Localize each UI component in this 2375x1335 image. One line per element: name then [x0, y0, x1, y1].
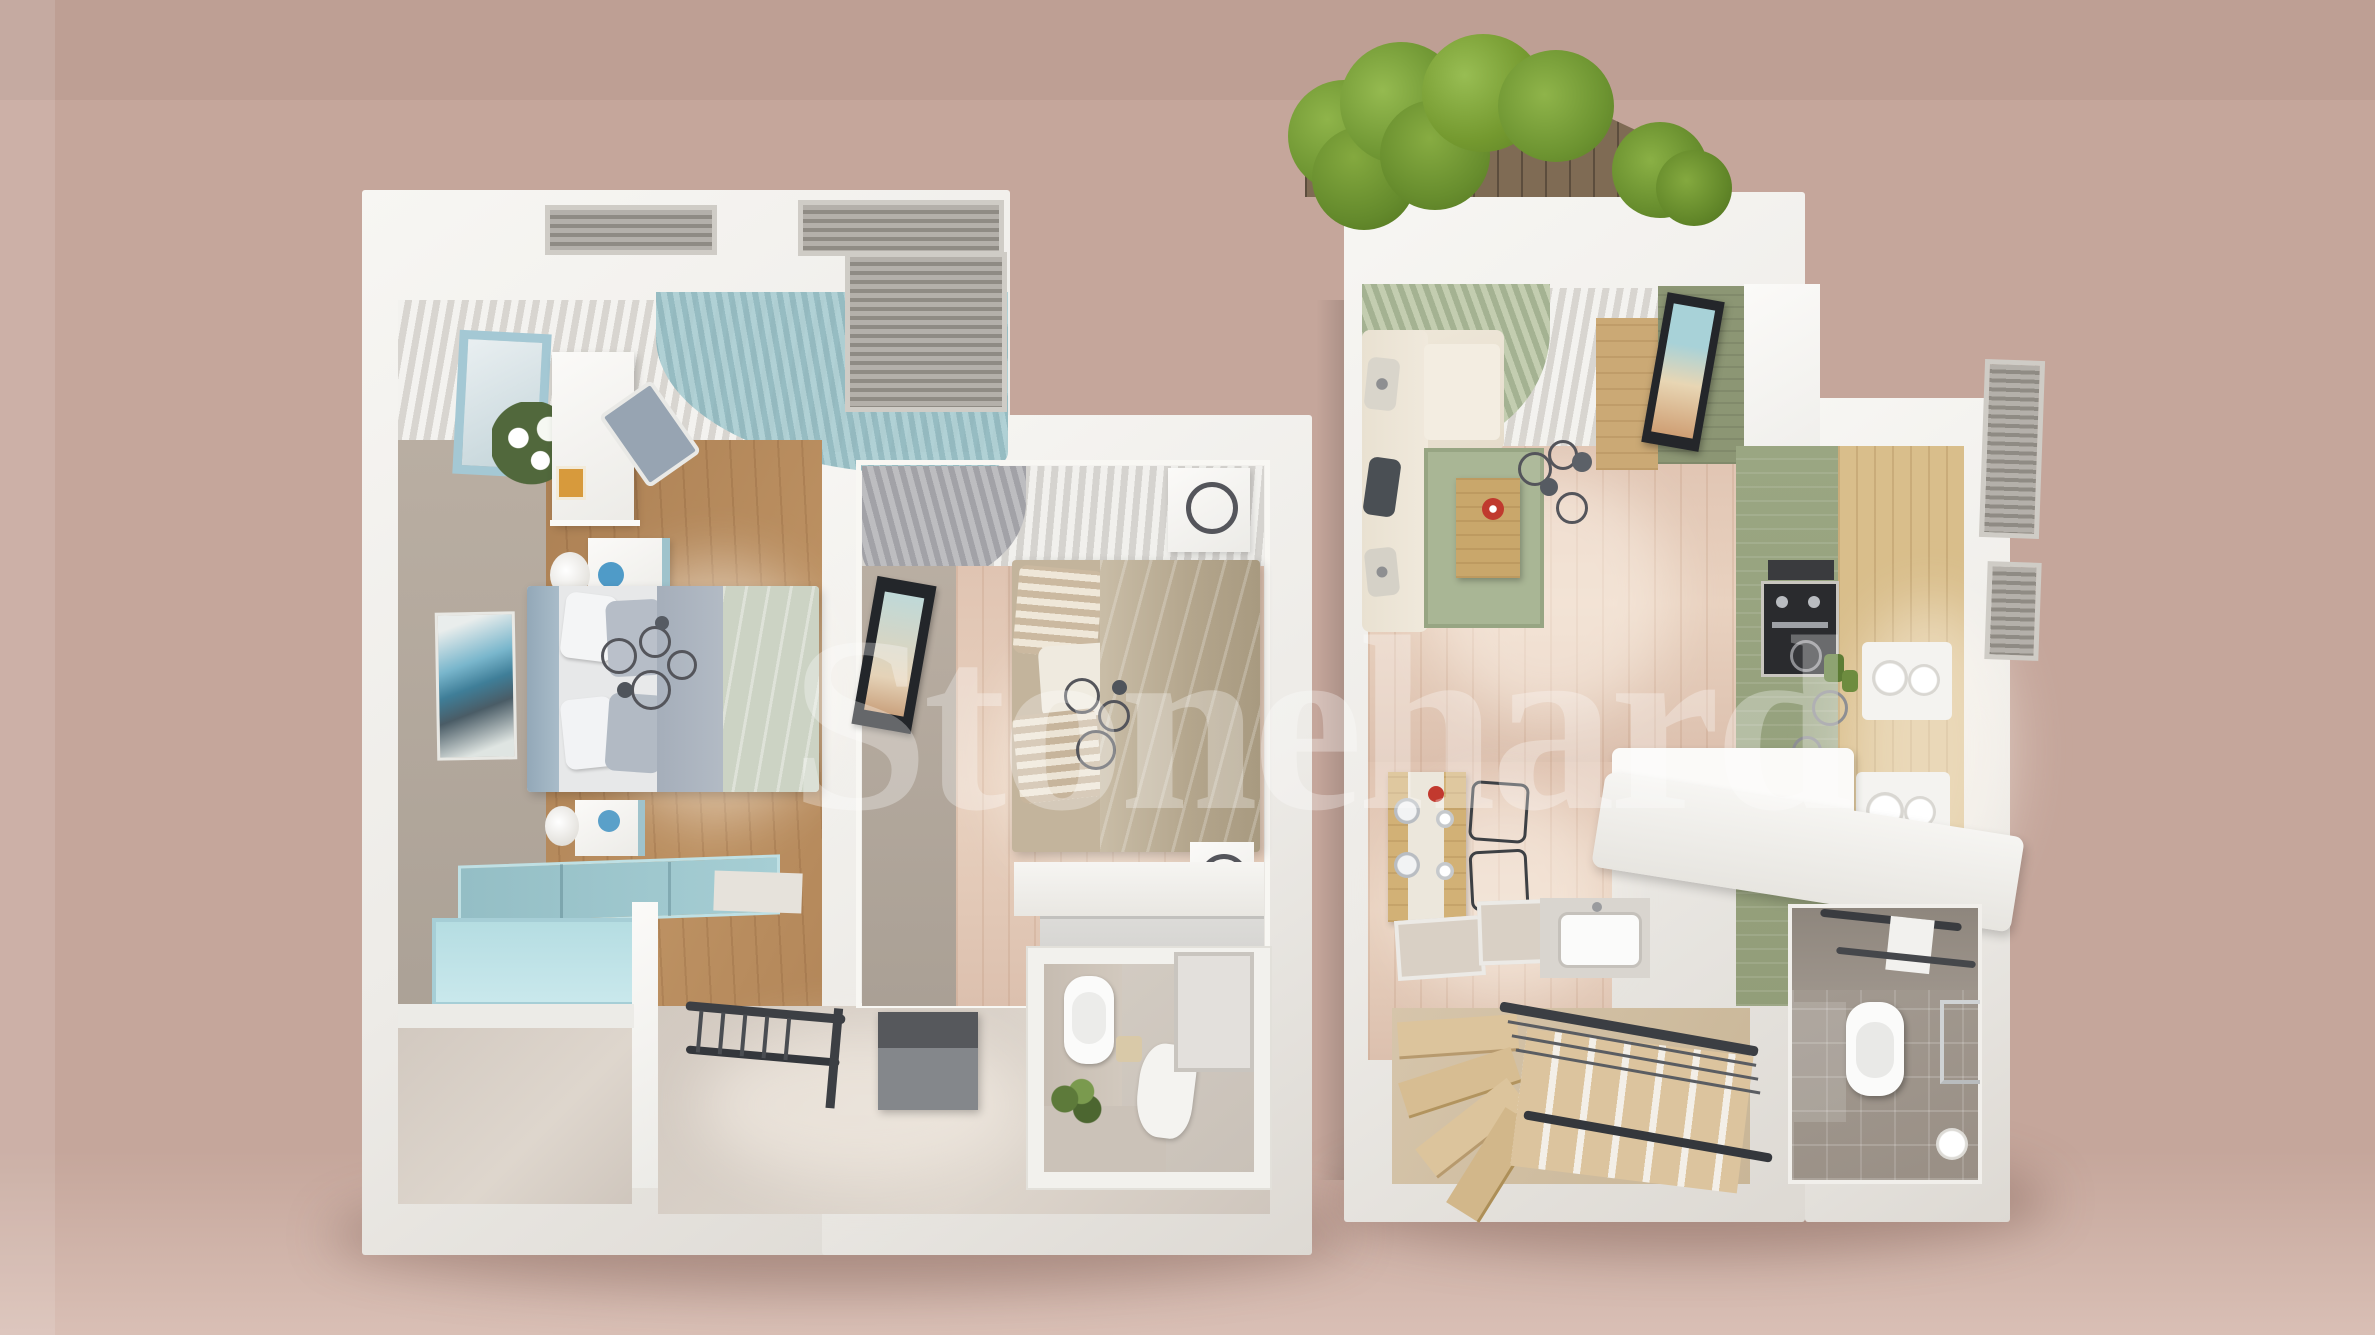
- interior-wall: [632, 902, 658, 1188]
- shower-area: [1794, 1002, 1846, 1122]
- chandelier-dot: [1572, 452, 1592, 472]
- pillow-ornate: [1363, 356, 1400, 411]
- bathroom-a: [1028, 948, 1270, 1188]
- wardrobe-top: [1014, 862, 1264, 916]
- window-shutter-icon: [1979, 359, 2045, 539]
- round-lamp-icon: [1186, 482, 1238, 534]
- paper-roll: [1936, 1128, 1968, 1160]
- chandelier-icon: [601, 638, 637, 674]
- book-orange: [556, 466, 586, 500]
- window-shutter-icon: [1984, 561, 2041, 661]
- wall-art: [435, 611, 518, 760]
- plate-icon: [1872, 660, 1908, 696]
- red-bowl: [1482, 498, 1504, 520]
- toilet: [1846, 1002, 1904, 1096]
- bed-1: [527, 586, 819, 792]
- chandelier-dot: [1540, 478, 1558, 496]
- wall-shelf: [550, 520, 640, 526]
- chandelier-dot: [655, 616, 669, 630]
- lamp-blue-accent: [598, 810, 620, 832]
- hedge-bush: [1656, 150, 1732, 226]
- bench-seam: [668, 862, 671, 916]
- plate-icon: [1908, 664, 1940, 696]
- bed1-headboard: [527, 586, 559, 792]
- bg-left-band: [0, 0, 55, 1335]
- chandelier-dot: [617, 682, 633, 698]
- toilet-seat: [1856, 1022, 1894, 1078]
- floorplan-render: Stonehard: [0, 0, 2375, 1335]
- chrome-rack: [1940, 1000, 1980, 1084]
- plant-icon: [1048, 1074, 1104, 1124]
- window-shutter-icon: [545, 205, 717, 255]
- utility-box-top: [878, 1012, 978, 1048]
- glass-icon: [1436, 862, 1454, 880]
- microwave: [1768, 560, 1834, 580]
- coffee-table: [1456, 478, 1520, 578]
- chandelier-icon: [667, 650, 697, 680]
- chandelier-icon: [639, 626, 671, 658]
- chandelier-icon: [631, 670, 671, 710]
- wall-ledge: [398, 1004, 634, 1028]
- dish-niche: [1862, 642, 1952, 720]
- sink-counter: [1540, 898, 1650, 978]
- toilet-seat: [1072, 992, 1106, 1044]
- towel: [1885, 916, 1934, 974]
- watermark: Stonehard: [790, 600, 1847, 850]
- coat-rack: [678, 995, 846, 1111]
- toiletry-items: [1116, 1036, 1142, 1062]
- wardrobe-shutter-icon: [845, 252, 1007, 412]
- chandelier-icon: [1556, 492, 1588, 524]
- faucet-icon: [1592, 902, 1602, 912]
- table-lamp-icon: [545, 806, 579, 846]
- teal-bench-front: [432, 918, 636, 1006]
- bathroom-door: [1174, 952, 1254, 1072]
- sofa-seat: [1424, 344, 1500, 440]
- sink-basin: [1558, 912, 1642, 968]
- utility-box: [878, 1012, 978, 1110]
- bench-seam: [560, 864, 563, 918]
- bg-top-band: [0, 0, 2375, 100]
- storage-room-floor: [398, 1028, 632, 1204]
- lamp-blue-accent: [598, 562, 624, 588]
- floor-mat: [1394, 915, 1486, 981]
- doormat: [713, 870, 802, 913]
- window-shutter-icon: [798, 200, 1004, 256]
